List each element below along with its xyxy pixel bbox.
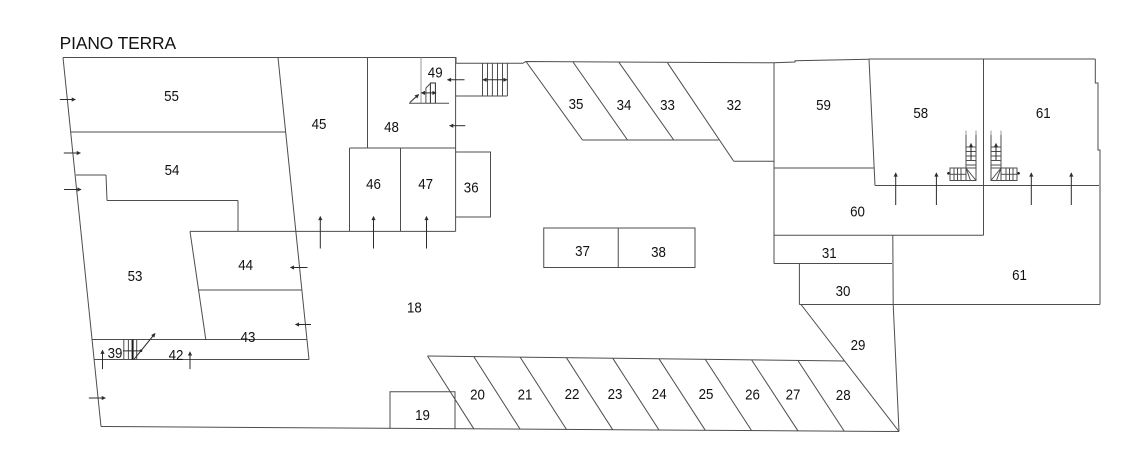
svg-text:60: 60 (850, 204, 865, 221)
svg-text:21: 21 (518, 387, 533, 404)
svg-text:PIANO TERRA: PIANO TERRA (60, 33, 177, 53)
svg-text:55: 55 (164, 88, 179, 105)
svg-text:54: 54 (165, 162, 180, 179)
svg-text:23: 23 (608, 386, 623, 403)
svg-text:28: 28 (836, 387, 851, 404)
svg-text:31: 31 (822, 245, 837, 262)
svg-text:24: 24 (652, 386, 667, 403)
svg-text:45: 45 (312, 116, 327, 133)
svg-text:46: 46 (366, 176, 381, 193)
svg-text:22: 22 (565, 386, 580, 403)
svg-text:35: 35 (569, 96, 584, 113)
svg-text:42: 42 (169, 347, 184, 364)
svg-text:19: 19 (415, 407, 430, 424)
svg-text:37: 37 (575, 243, 590, 260)
svg-text:32: 32 (727, 97, 742, 114)
svg-text:18: 18 (407, 300, 422, 317)
svg-text:61: 61 (1012, 267, 1027, 284)
svg-text:25: 25 (699, 386, 714, 403)
svg-text:33: 33 (660, 97, 675, 114)
svg-text:43: 43 (241, 329, 256, 346)
svg-text:30: 30 (836, 283, 851, 300)
svg-text:27: 27 (786, 387, 801, 404)
svg-text:59: 59 (816, 97, 831, 114)
svg-text:53: 53 (128, 268, 143, 285)
svg-text:34: 34 (617, 97, 632, 114)
svg-text:39: 39 (108, 345, 123, 362)
svg-text:38: 38 (651, 244, 666, 261)
svg-text:48: 48 (384, 119, 399, 136)
svg-text:58: 58 (913, 105, 928, 122)
svg-text:49: 49 (428, 64, 443, 81)
svg-text:61: 61 (1036, 105, 1051, 122)
svg-text:26: 26 (745, 387, 760, 404)
svg-text:20: 20 (470, 387, 485, 404)
svg-text:29: 29 (851, 337, 866, 354)
svg-text:47: 47 (418, 176, 433, 193)
svg-text:44: 44 (238, 257, 253, 274)
svg-text:36: 36 (464, 180, 479, 197)
